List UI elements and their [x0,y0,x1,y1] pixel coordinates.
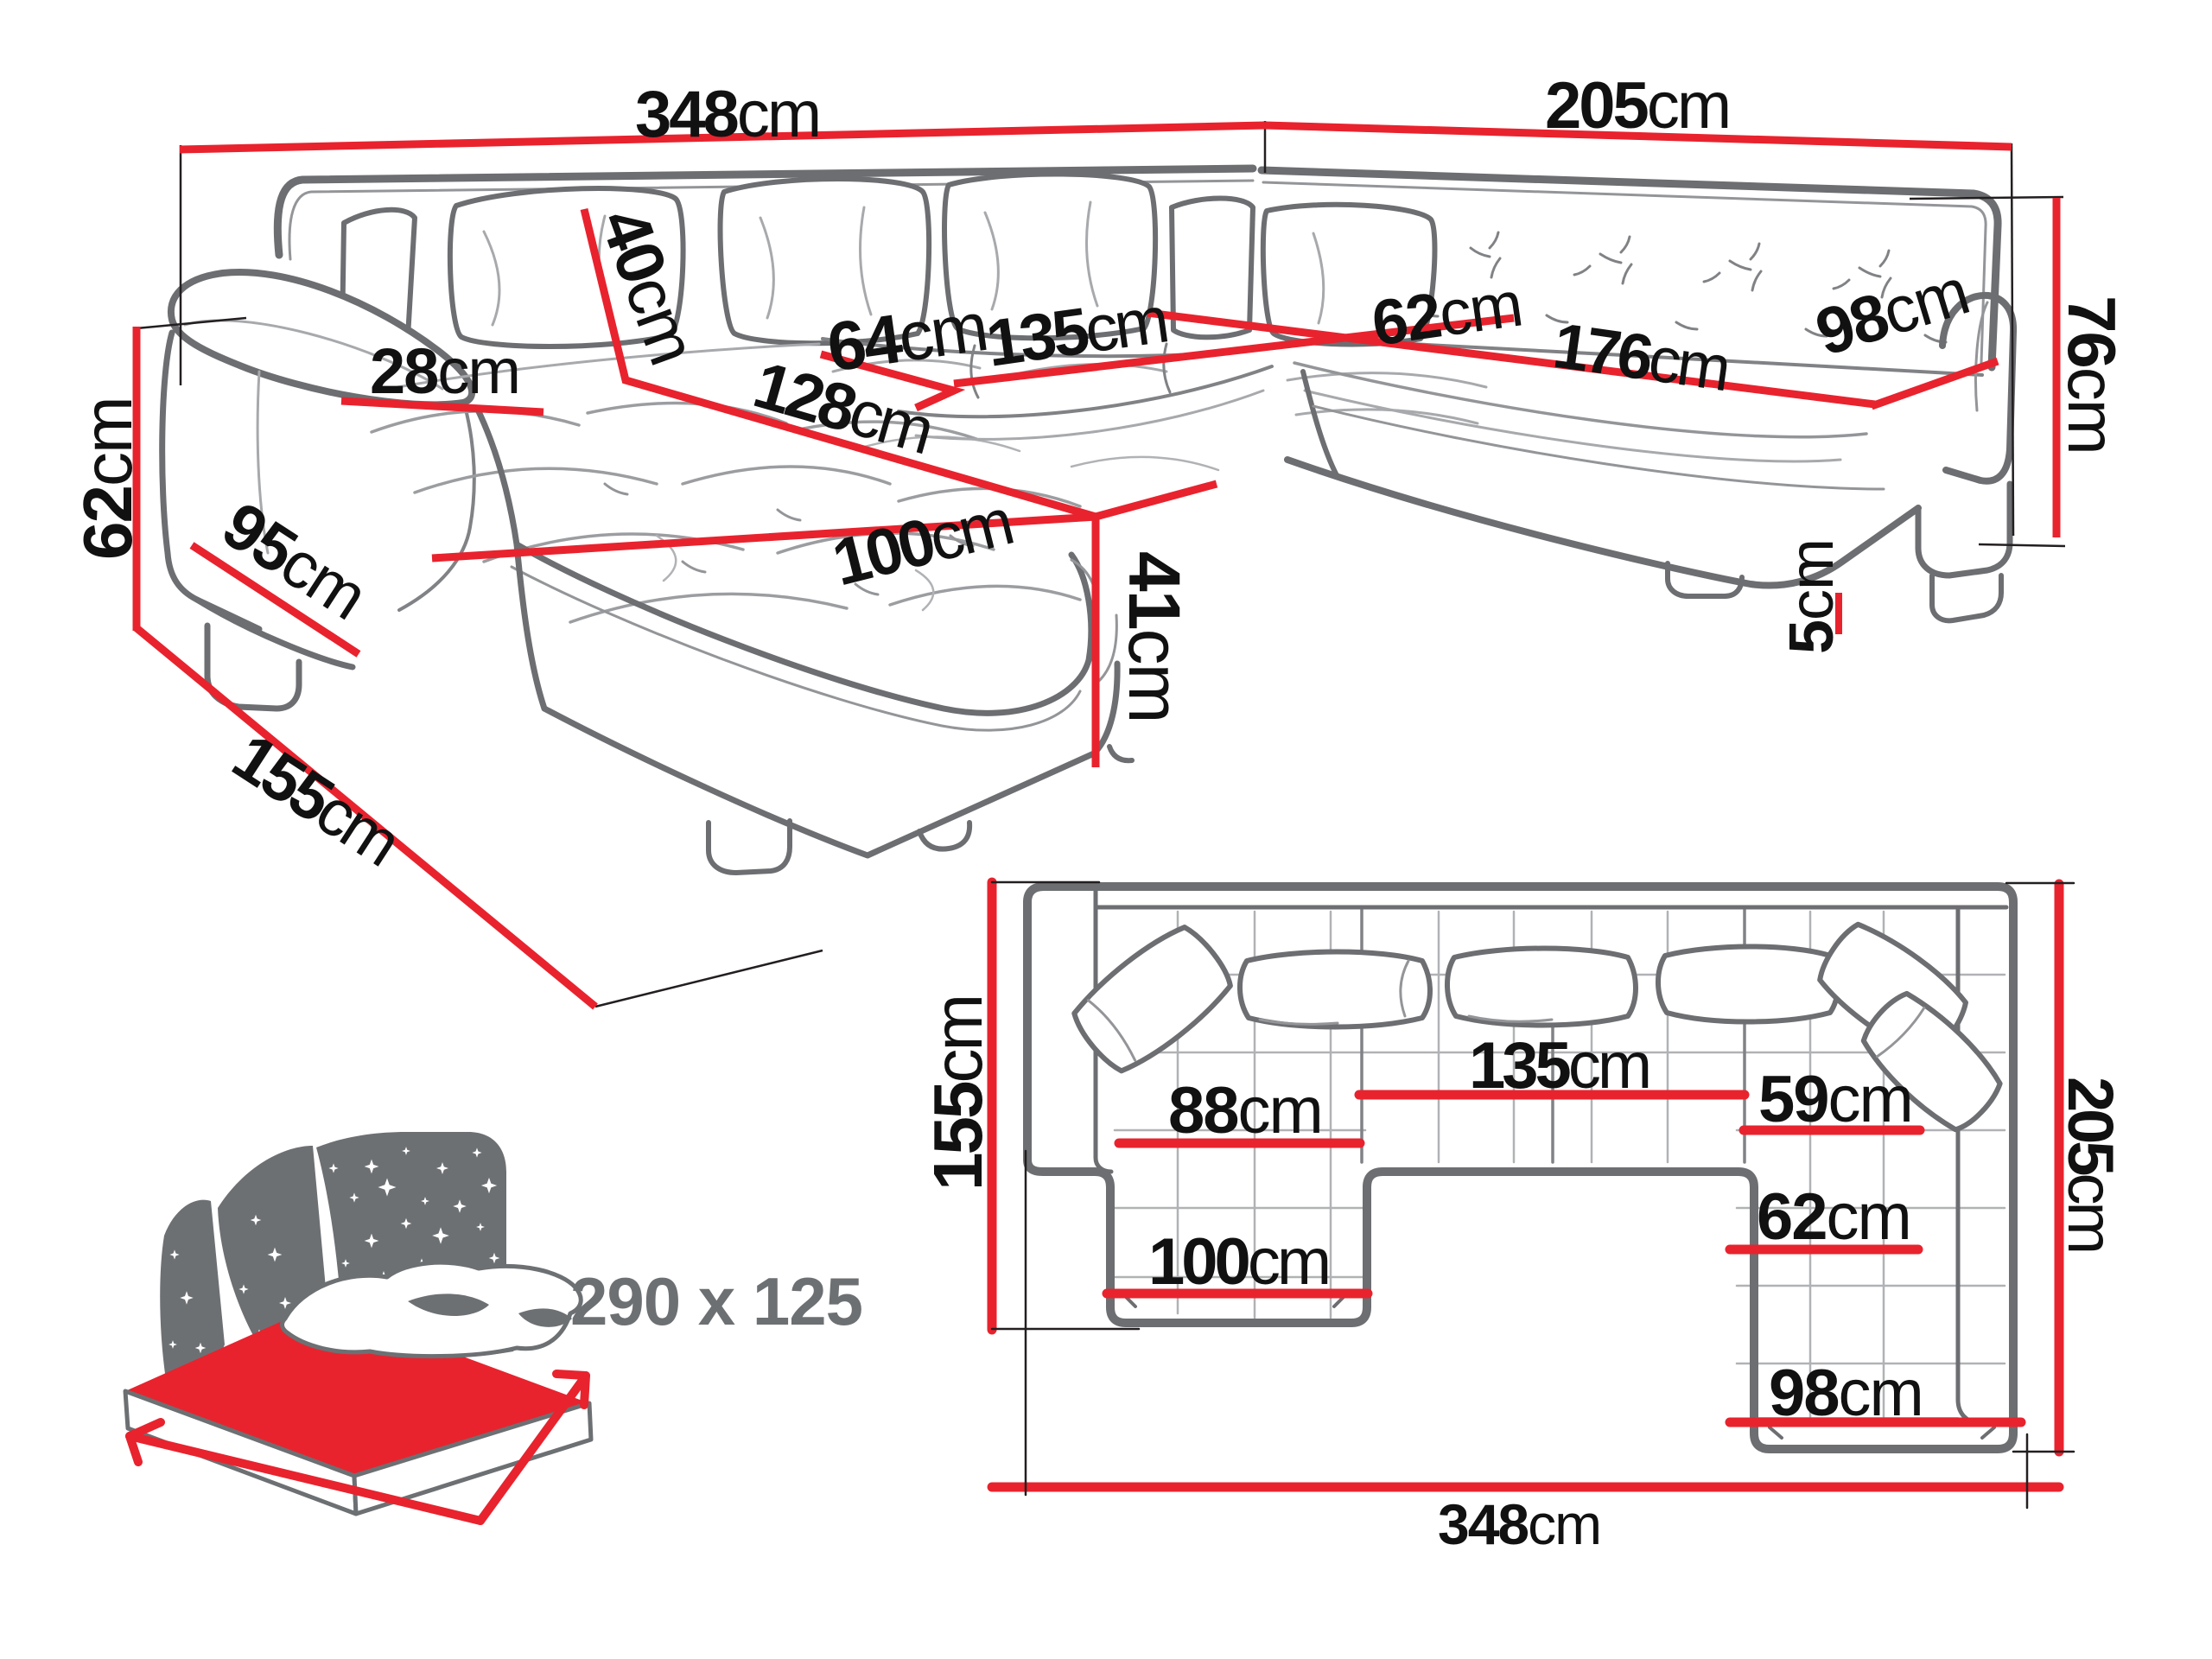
svg-text:62cm: 62cm [69,397,146,560]
svg-text:62cm: 62cm [1757,1180,1910,1254]
svg-text:41cm: 41cm [1114,551,1195,721]
svg-text:205cm: 205cm [2055,1077,2126,1251]
svg-text:88cm: 88cm [1168,1074,1322,1147]
svg-text:290 x 125: 290 x 125 [570,1263,862,1339]
svg-text:100cm: 100cm [1148,1225,1328,1299]
svg-text:59cm: 59cm [1758,1063,1912,1136]
svg-text:28cm: 28cm [370,335,519,407]
svg-text:98cm: 98cm [1769,1357,1923,1430]
svg-text:205cm: 205cm [1545,69,1729,143]
svg-text:155cm: 155cm [919,996,996,1191]
svg-text:348cm: 348cm [635,78,819,151]
svg-text:348cm: 348cm [1438,1492,1600,1556]
svg-text:76cm: 76cm [2054,296,2130,454]
svg-text:5cm: 5cm [1777,539,1847,654]
svg-text:135cm: 135cm [1469,1029,1649,1103]
